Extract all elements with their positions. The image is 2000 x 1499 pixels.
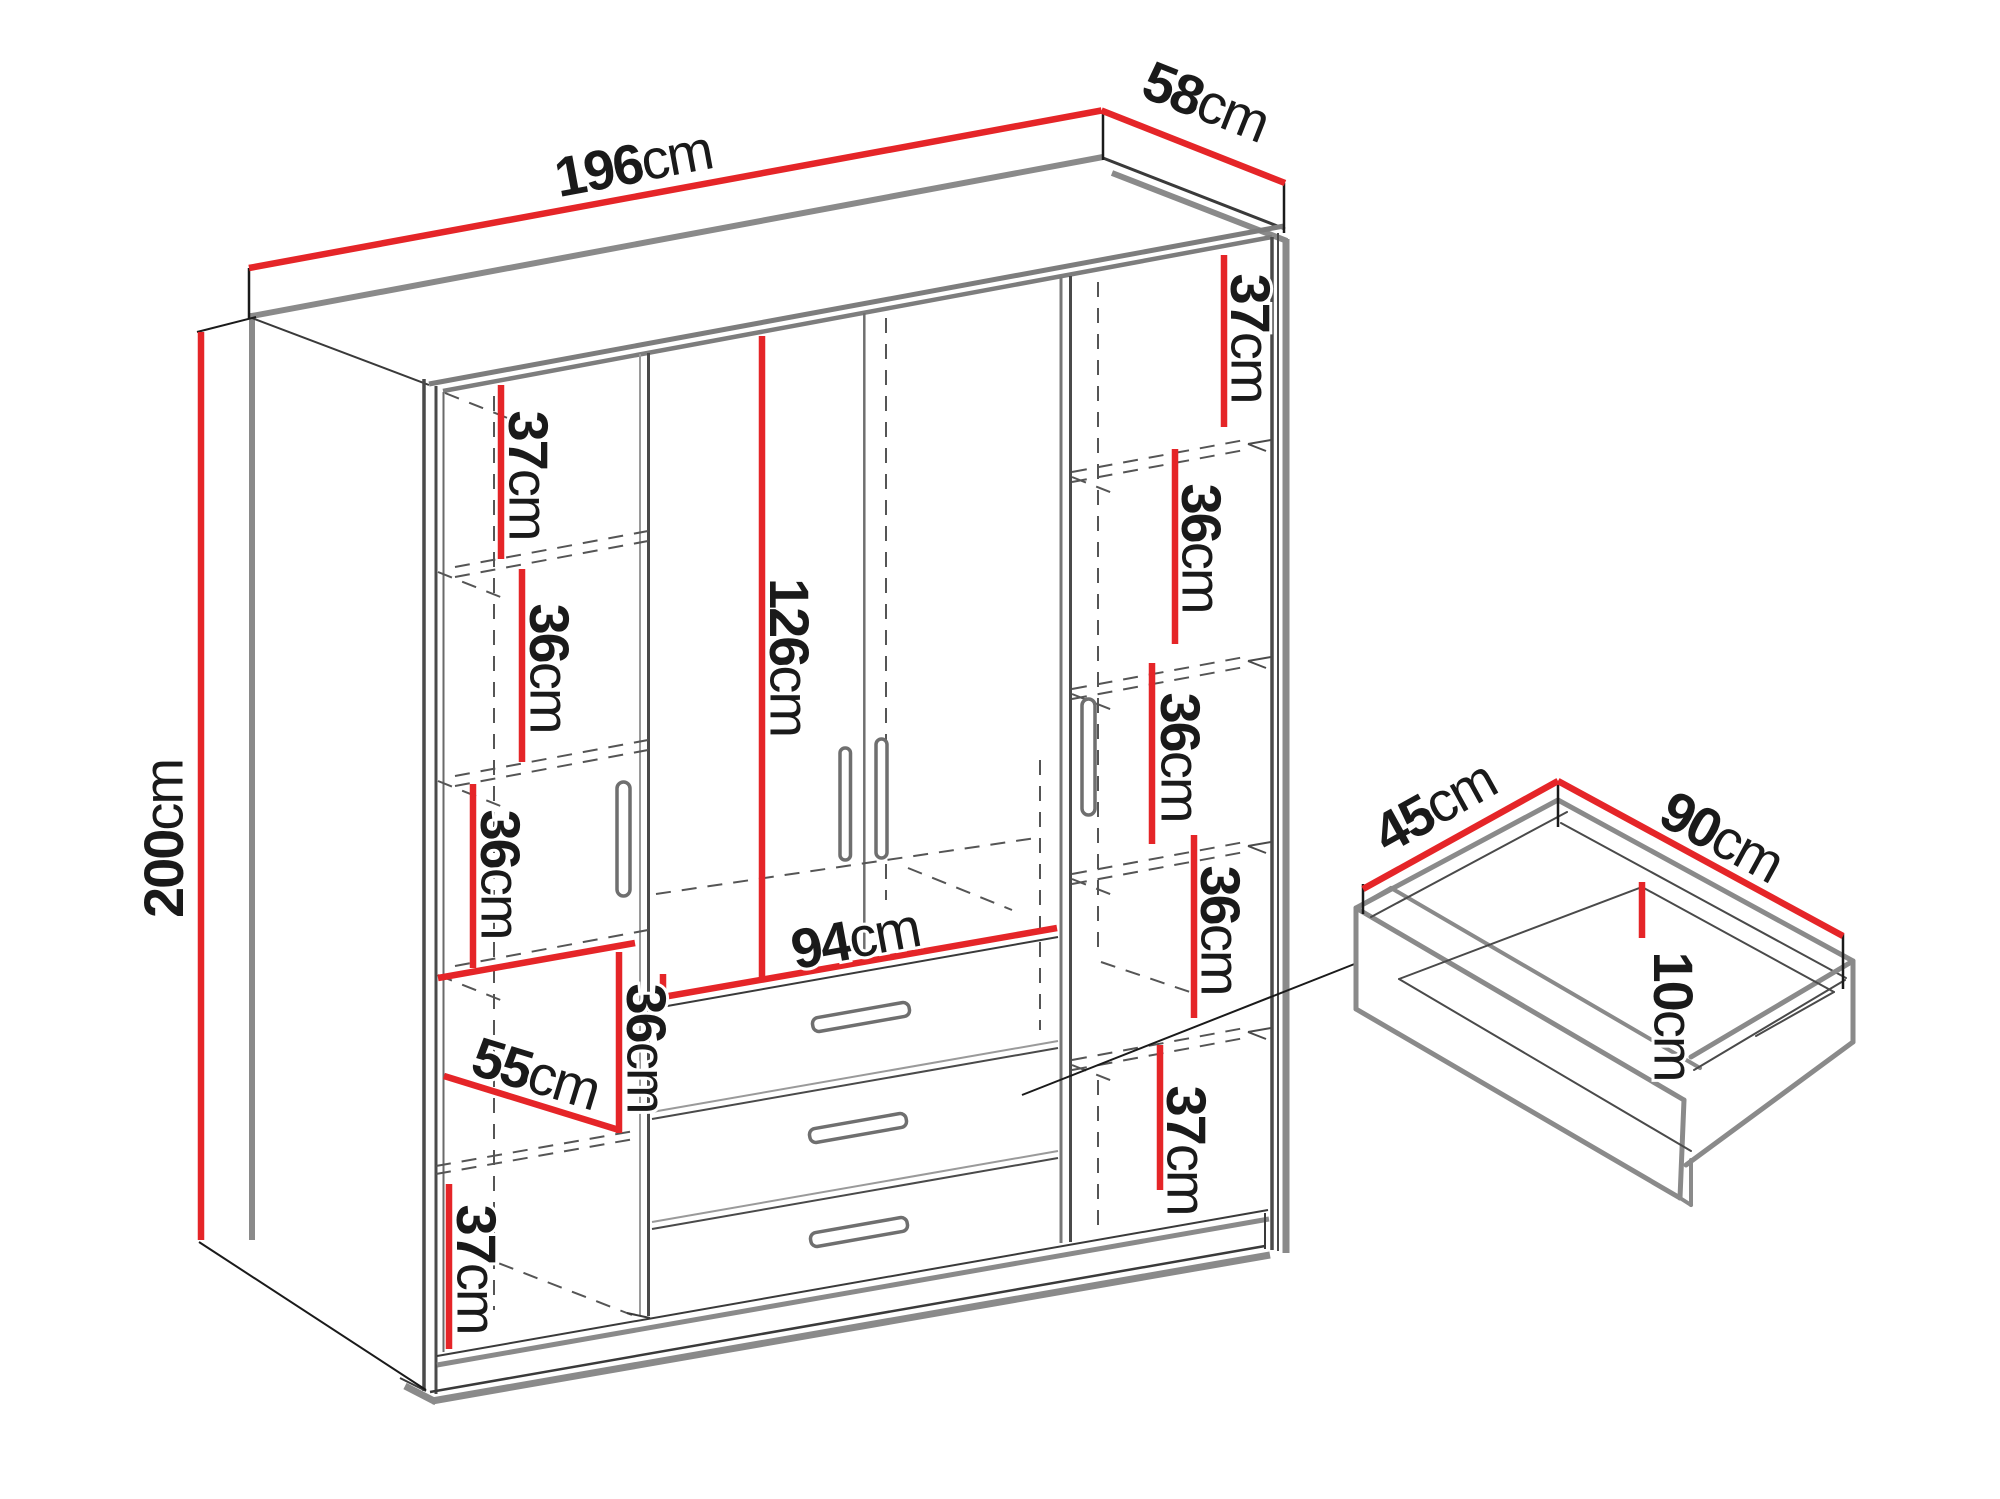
svg-text:36cm: 36cm xyxy=(1171,484,1234,613)
svg-text:200cm: 200cm xyxy=(132,760,195,918)
svg-text:36cm: 36cm xyxy=(1190,866,1253,995)
svg-text:36cm: 36cm xyxy=(519,604,582,733)
svg-text:36cm: 36cm xyxy=(616,984,679,1113)
svg-text:37cm: 37cm xyxy=(446,1205,509,1334)
svg-text:10cm: 10cm xyxy=(1643,952,1706,1081)
svg-text:37cm: 37cm xyxy=(498,411,561,540)
svg-text:37cm: 37cm xyxy=(1156,1086,1219,1215)
svg-text:126cm: 126cm xyxy=(759,578,822,736)
svg-text:36cm: 36cm xyxy=(470,810,533,939)
svg-text:36cm: 36cm xyxy=(1150,693,1213,822)
svg-text:37cm: 37cm xyxy=(1220,274,1283,403)
